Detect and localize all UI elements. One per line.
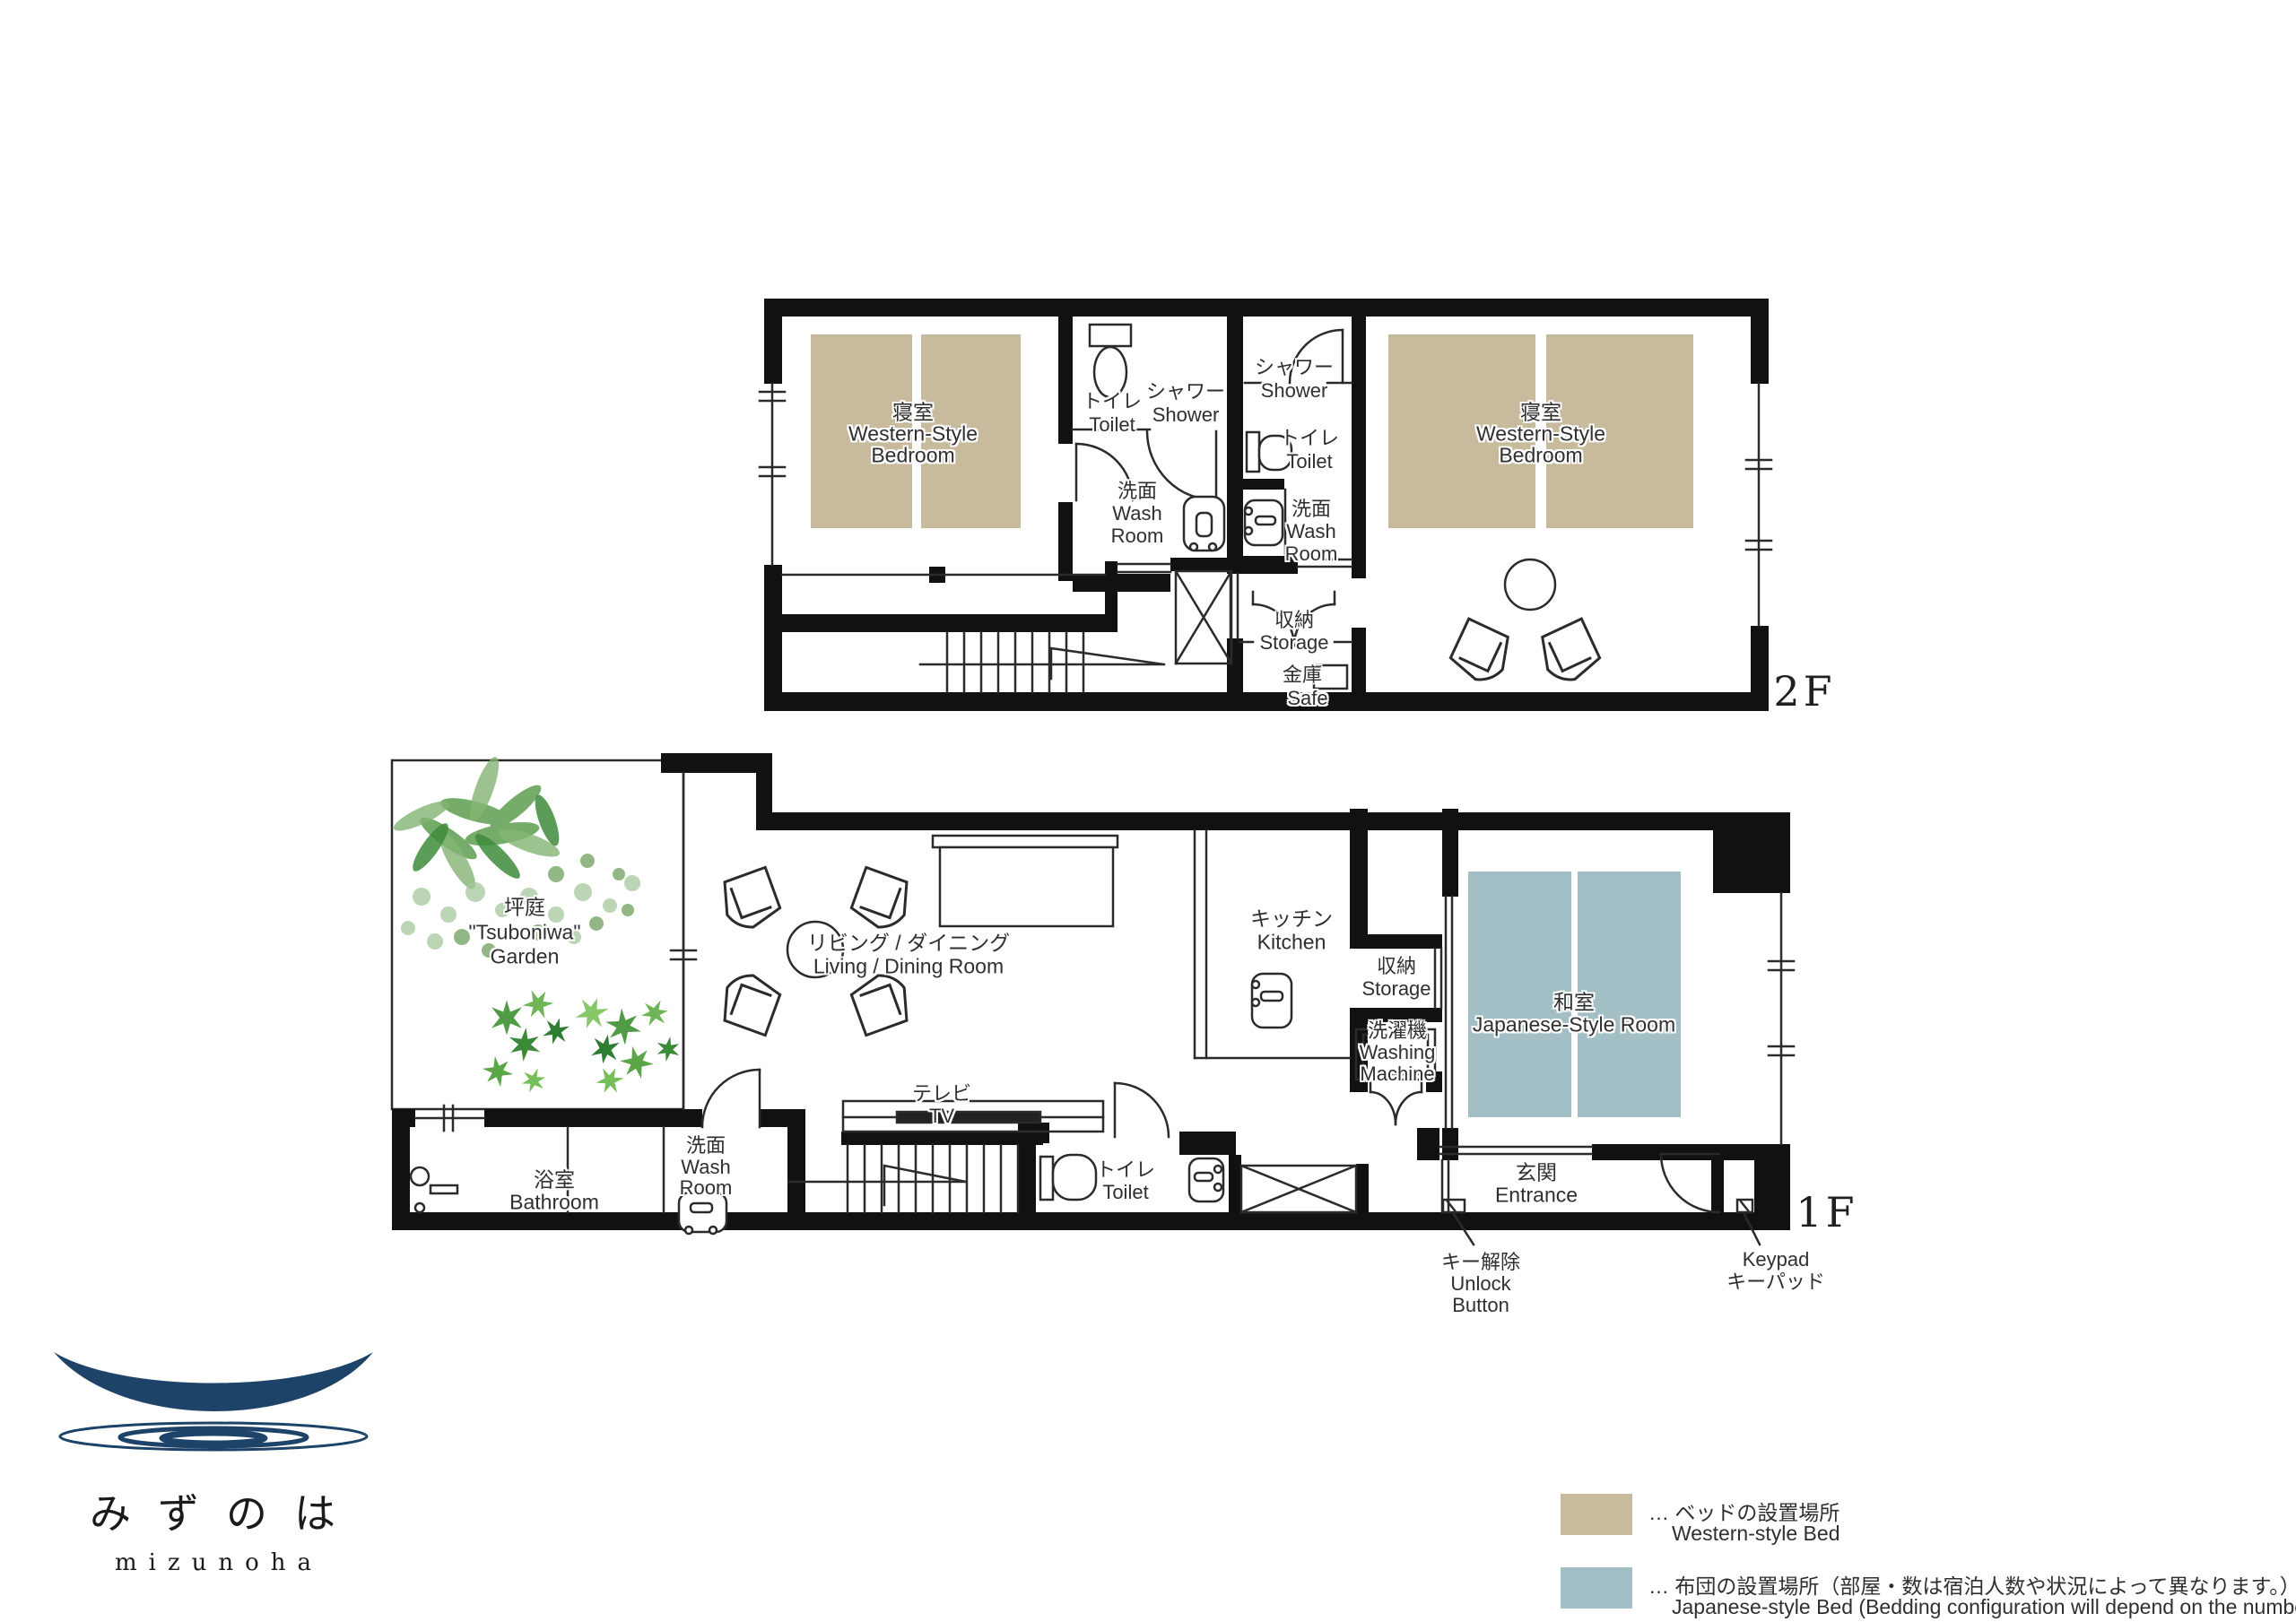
room-label-living-en: Living / Dining Room [813,957,1004,977]
room-label-washing-machine-en2: Machine [1360,1064,1434,1084]
logo-mark-icon [54,1352,373,1450]
room-label-tv-jp: テレビ [912,1084,971,1104]
room-label-washroom-a-jp: 洗面 [1118,481,1157,501]
room-label-washroom-1f-en1: Wash [681,1158,730,1177]
room-label-living-jp: リビング / ダイニング [807,933,1010,954]
room-label-toilet-a-jp: トイレ [1083,392,1142,412]
room-label-japanese-room-en: Japanese-Style Room [1473,1015,1675,1036]
legend-swatch-japanese-bed [1561,1567,1632,1609]
room-label-storage-2f-en: Storage [1259,633,1328,653]
room-label-washroom-a-en1: Wash [1112,504,1161,524]
room-label-storage-1f-jp: 収納 [1377,957,1416,976]
logo-name-jp: みずのは [90,1481,362,1540]
annotation-unlock-jp: キー解除 [1441,1253,1520,1272]
room-label-bathroom-jp: 浴室 [534,1170,575,1191]
legend-swatch-western-bed [1561,1494,1632,1535]
floorplan-drawing: .bedfill{fill:var(--bed,#c8ba9d);} .futo… [0,0,2296,1622]
room-label-garden-jp: 坪庭 [504,898,545,918]
room-label-shower-a-en: Shower [1152,405,1220,425]
room-label-bedroom-left-en1: Western-Style [848,424,978,445]
room-label-washroom-a-en2: Room [1111,526,1164,546]
room-label-bedroom-left-jp: 寝室 [892,403,934,423]
annotation-keypad-en: Keypad [1743,1250,1810,1270]
room-label-storage-1f-en: Storage [1361,979,1431,999]
floor-plan-page: .bedfill{fill:var(--bed,#c8ba9d);} .futo… [0,0,2296,1622]
room-label-shower-b-jp: シャワー [1255,358,1334,377]
room-label-washroom-b-jp: 洗面 [1291,499,1331,519]
room-label-toilet-1f-en: Toilet [1102,1183,1148,1202]
room-label-toilet-b-jp: トイレ [1280,429,1339,448]
room-label-safe-jp: 金庫 [1283,665,1322,685]
room-label-washroom-1f-jp: 洗面 [686,1136,726,1156]
room-label-entrance-jp: 玄関 [1516,1163,1557,1184]
legend-swatches [1561,1494,1632,1609]
legend-item-japanese-bed-en: Japanese-style Bed (Bedding configuratio… [1672,1595,2296,1619]
room-label-kitchen-en: Kitchen [1257,932,1326,953]
room-label-tv-en: TV [929,1106,954,1126]
room-label-garden-en1: "Tsuboniwa" [468,923,580,943]
room-label-toilet-1f-jp: トイレ [1096,1160,1155,1180]
room-label-storage-2f-jp: 収納 [1274,611,1314,630]
room-label-bedroom-left-en2: Bedroom [871,446,954,466]
room-label-shower-a-jp: シャワー [1146,382,1225,402]
room-label-kitchen-jp: キッチン [1250,909,1333,930]
room-label-toilet-b-en: Toilet [1286,452,1332,472]
room-label-shower-b-en: Shower [1261,381,1328,401]
annotation-unlock-en1: Unlock [1450,1274,1510,1294]
room-label-bedroom-right-en1: Western-Style [1476,424,1605,445]
room-label-bathroom-en: Bathroom [509,1193,599,1213]
annotation-unlock-en2: Button [1452,1296,1509,1315]
room-label-washing-machine-jp: 洗濯機 [1368,1021,1427,1041]
annotation-keypad-jp: キーパッド [1726,1272,1825,1292]
room-label-japanese-room-jp: 和室 [1553,993,1595,1013]
logo-name-en: mizunoha [115,1549,323,1576]
room-label-entrance-en: Entrance [1495,1185,1578,1206]
room-label-washroom-b-en2: Room [1285,544,1338,564]
floor1-label: 1F [1796,1188,1857,1236]
room-label-garden-en2: Garden [491,947,560,967]
room-label-safe-en: Safe [1287,689,1327,708]
room-label-washroom-1f-en2: Room [680,1178,733,1198]
floor1-shaft [1241,1166,1356,1212]
floor2-label: 2F [1773,667,1835,716]
room-label-bedroom-right-en2: Bedroom [1499,446,1582,466]
room-label-washroom-b-en1: Wash [1286,522,1335,542]
room-label-washing-machine-en1: Washing [1360,1043,1436,1063]
floor2-shaft [1176,571,1231,664]
room-label-toilet-a-en: Toilet [1089,415,1135,435]
legend-item-western-bed-en: Western-style Bed [1672,1522,1839,1546]
room-label-bedroom-right-jp: 寝室 [1520,403,1561,423]
maple-leaves-icon [478,985,683,1098]
